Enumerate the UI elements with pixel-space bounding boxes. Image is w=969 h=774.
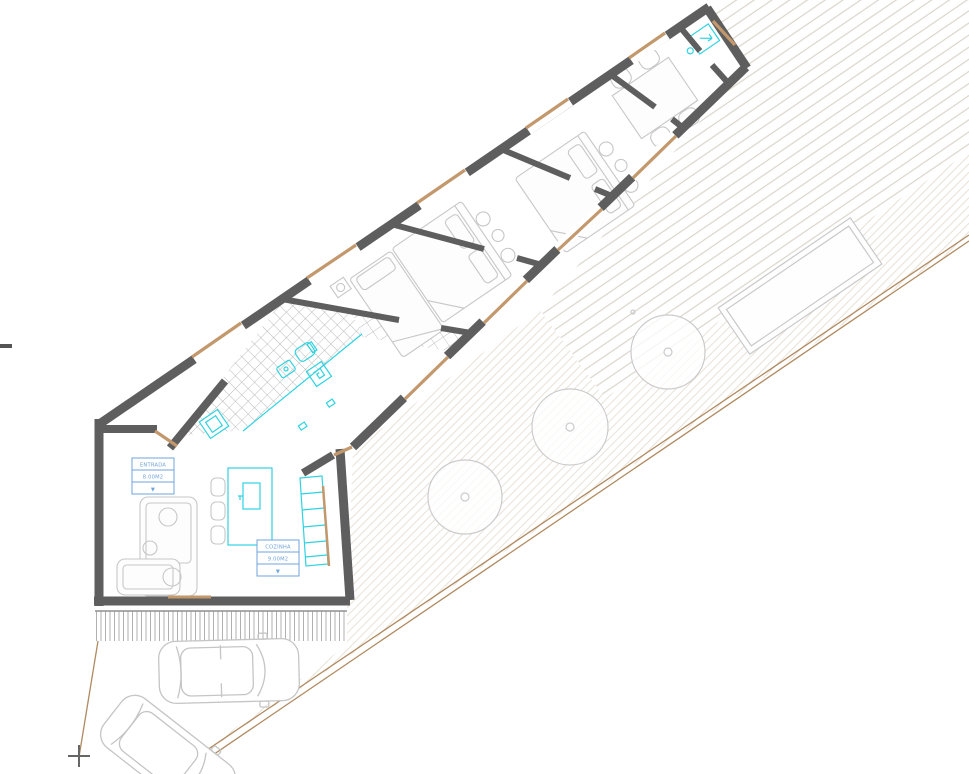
floor-plan: ENTRADA 8.00M2 ▼ COZINHA 9.00M2 ▼ xyxy=(0,0,969,774)
floor-plan-canvas: ENTRADA 8.00M2 ▼ COZINHA 9.00M2 ▼ xyxy=(0,0,969,774)
entry-label-symbol: ▼ xyxy=(151,487,155,493)
kitchen-label-symbol: ▼ xyxy=(276,569,280,575)
boundary-line-west xyxy=(79,641,98,757)
parked-cars xyxy=(90,632,300,774)
entry-label-name: ENTRADA xyxy=(140,463,166,469)
entry-label-area: 8.00M2 xyxy=(143,475,164,481)
tree-symbol-1 xyxy=(428,460,502,534)
tree-symbol-2 xyxy=(532,389,608,465)
boundary-corner-mark xyxy=(68,745,90,767)
room-label-kitchen: COZINHA 9.00M2 ▼ xyxy=(257,540,299,576)
car-1 xyxy=(158,632,300,710)
kitchen-label-area: 9.00M2 xyxy=(268,557,289,563)
kitchen-island xyxy=(228,468,272,545)
tree-symbol-3 xyxy=(631,315,705,389)
room-label-entry: ENTRADA 8.00M2 ▼ xyxy=(132,458,174,494)
kitchen-label-name: COZINHA xyxy=(265,545,291,551)
driveway-wall-hatch xyxy=(95,611,347,641)
survey-tick xyxy=(0,344,12,348)
